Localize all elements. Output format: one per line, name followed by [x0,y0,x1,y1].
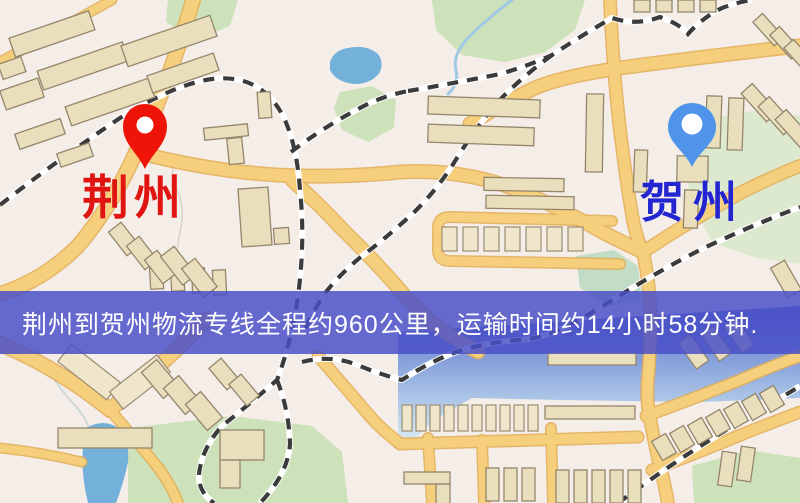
map-stage: 荆州 贺州 荆州到贺州物流专线全程约960公里，运输时间约14小时58分钟. [0,0,800,503]
route-info-banner: 荆州到贺州物流专线全程约960公里，运输时间约14小时58分钟. [0,291,800,354]
origin-city-label: 荆州 [82,176,186,223]
map-canvas [0,0,800,503]
destination-city-label: 贺州 [640,181,746,225]
route-info-text: 荆州到贺州物流专线全程约960公里，运输时间约14小时58分钟. [22,305,758,341]
